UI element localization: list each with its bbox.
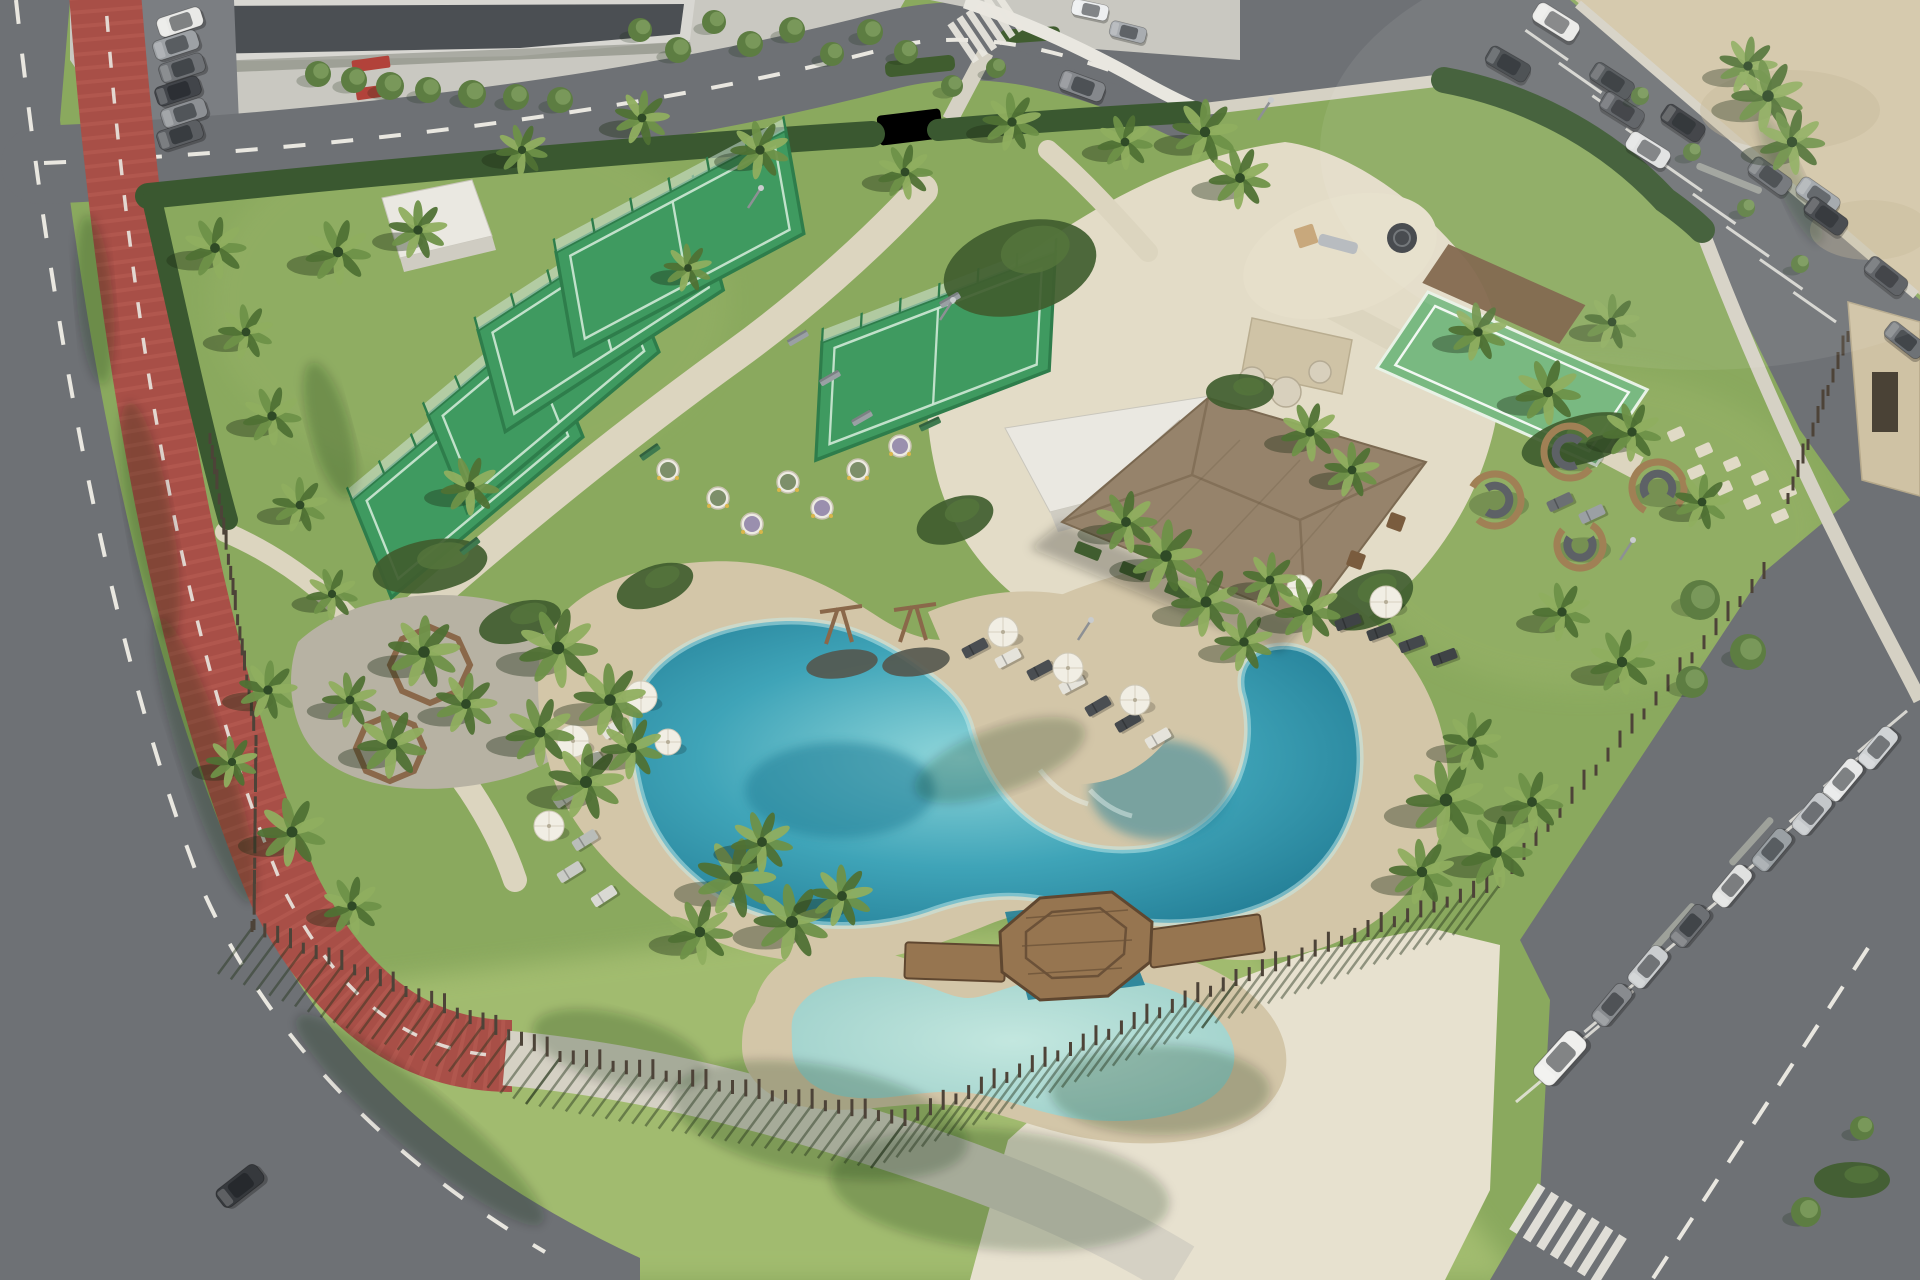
fence-post — [942, 1090, 945, 1110]
fence-post — [837, 1100, 840, 1114]
fence-post — [1171, 999, 1174, 1013]
palm-crown — [461, 699, 471, 709]
fence-post — [1763, 562, 1766, 579]
fence-post — [1822, 390, 1825, 410]
fence-post — [784, 1090, 787, 1104]
fence-post — [1222, 977, 1225, 991]
palm-crown — [228, 758, 236, 766]
fence-post — [1643, 708, 1646, 719]
fence-post — [218, 493, 221, 504]
palm-crown — [1698, 498, 1707, 507]
fence-post — [1158, 1007, 1161, 1018]
palm-crown — [346, 696, 355, 705]
fence-post — [967, 1085, 970, 1099]
potted-tree — [777, 471, 799, 493]
fence-post — [1094, 1025, 1097, 1045]
fence-post — [1792, 477, 1795, 491]
fence-post — [443, 993, 446, 1013]
fence-post — [771, 1090, 774, 1101]
fence-post — [1145, 1004, 1148, 1024]
fence-post — [1327, 932, 1330, 952]
fence-post — [1812, 423, 1815, 437]
fence-post — [1314, 940, 1317, 957]
fence-post — [1018, 1064, 1021, 1078]
fence-post — [1832, 369, 1835, 383]
fence-post — [904, 1115, 907, 1126]
fence-post — [1691, 652, 1694, 663]
fence-post — [254, 796, 257, 807]
fence-post — [1184, 991, 1187, 1008]
potted-tree — [847, 459, 869, 481]
palm-crown — [328, 590, 336, 598]
fence-post — [1406, 908, 1409, 922]
fence-post — [797, 1089, 800, 1106]
fence-post — [430, 991, 433, 1008]
potted-tree — [811, 497, 833, 519]
pot-plant — [780, 474, 796, 490]
fence-post — [209, 433, 212, 444]
fence-post — [598, 1049, 601, 1069]
palm-crown — [1440, 794, 1453, 807]
fence-post — [289, 928, 292, 948]
fence-post — [507, 1029, 510, 1040]
fence-post — [704, 1069, 707, 1089]
fence-post — [417, 988, 420, 1002]
palm-crown — [552, 642, 565, 655]
fence-post — [482, 1013, 485, 1030]
palm-crown — [387, 739, 398, 750]
fence-post — [1069, 1042, 1072, 1056]
aerial-scene-canvas — [0, 0, 1920, 1280]
fence-post — [1607, 748, 1610, 762]
fence-post — [811, 1089, 814, 1109]
fence-post — [1727, 601, 1730, 621]
palm-crown — [296, 501, 305, 510]
fence-post — [1082, 1034, 1085, 1051]
fence-post — [1802, 444, 1805, 464]
fence-post — [1807, 439, 1810, 450]
fence-post — [929, 1098, 932, 1115]
palm-crown — [638, 114, 647, 123]
fence-post — [520, 1032, 523, 1046]
fence-post — [1739, 596, 1742, 607]
fence-post — [1655, 691, 1658, 705]
pot-plant — [660, 462, 676, 478]
palm-crown — [627, 743, 637, 753]
palm-crown — [1305, 427, 1314, 436]
palm-crown — [604, 694, 616, 706]
palm-crown — [757, 837, 767, 847]
fence-post — [651, 1059, 654, 1079]
palm-crown — [1490, 846, 1502, 858]
fence-post — [353, 964, 356, 975]
palm-crown — [580, 776, 592, 788]
fence-post — [405, 986, 408, 997]
fence-post — [1472, 881, 1475, 898]
fence-post — [234, 590, 237, 610]
fence-post — [276, 926, 279, 943]
fence-post — [758, 1079, 761, 1099]
fence-post — [546, 1037, 549, 1057]
palm-crown — [1121, 517, 1131, 527]
fence-post — [328, 948, 331, 965]
fence-post — [1787, 493, 1790, 504]
palm-crown — [730, 872, 743, 885]
fence-post — [392, 972, 395, 992]
fence-post — [236, 614, 239, 625]
fence-post — [220, 506, 223, 520]
palm-crown — [1557, 607, 1566, 616]
fence-post — [1248, 967, 1251, 981]
fence-post — [1619, 731, 1622, 748]
palm-crown — [347, 901, 356, 910]
fence-post — [211, 445, 214, 459]
pot-plant — [892, 438, 908, 454]
fence-post — [678, 1070, 681, 1084]
pot-plant — [710, 490, 726, 506]
palm-crown — [210, 243, 220, 253]
palm-crown — [418, 646, 430, 658]
entrance-door — [1872, 372, 1898, 432]
fence-post — [254, 772, 257, 792]
palm-crown — [1467, 737, 1476, 746]
fence-post — [691, 1070, 694, 1087]
fence-post — [890, 1110, 893, 1124]
palm-crown — [465, 481, 474, 490]
boulder — [1271, 377, 1301, 407]
fence-post — [1301, 948, 1304, 962]
fence-post — [227, 554, 230, 565]
fence-post — [1571, 787, 1574, 804]
palm-crown — [901, 168, 910, 177]
fence-post — [1005, 1072, 1008, 1083]
palm-crown — [263, 685, 272, 694]
potted-tree — [657, 459, 679, 481]
fence-post — [229, 566, 232, 580]
fence-post — [850, 1099, 853, 1116]
palm-crown — [1348, 466, 1357, 475]
fence-post — [877, 1110, 880, 1121]
palm-crown — [695, 927, 705, 937]
fence-post — [1419, 900, 1422, 917]
pot-plant — [744, 516, 760, 532]
fence-post — [255, 735, 258, 746]
fence-post — [1817, 406, 1820, 423]
fence-post — [253, 858, 256, 869]
potted-tree — [707, 487, 729, 509]
fence-post — [494, 1015, 497, 1035]
fence-post — [533, 1034, 536, 1051]
fence-post — [993, 1068, 996, 1088]
palm-crown — [287, 827, 298, 838]
palm-crown — [1417, 867, 1427, 877]
fence-post — [744, 1079, 747, 1096]
fence-post — [254, 809, 257, 823]
palm-crown — [1527, 797, 1537, 807]
fence-post — [1751, 579, 1754, 593]
palm-crown — [1303, 605, 1313, 615]
fence-post — [1133, 1012, 1136, 1029]
fence-post — [253, 870, 256, 884]
palm-crown — [267, 411, 276, 420]
fence-post — [731, 1080, 734, 1094]
fence-post — [1031, 1055, 1034, 1072]
pot-plant — [850, 462, 866, 478]
fence-post — [469, 1010, 472, 1024]
fence-post — [1703, 635, 1706, 649]
palm-crown — [1007, 117, 1016, 126]
fence-post — [1261, 959, 1264, 976]
fence-post — [1209, 986, 1212, 997]
shrub-mass — [1206, 374, 1274, 410]
fence-post — [1393, 916, 1396, 927]
palm-crown — [1617, 657, 1627, 667]
potted-tree — [741, 513, 763, 535]
palm-crown — [786, 916, 798, 928]
fence-post — [1583, 770, 1586, 790]
fence-post — [864, 1099, 867, 1119]
palm-crown — [1266, 576, 1275, 585]
fence-post — [559, 1051, 562, 1062]
fence-post — [1056, 1050, 1059, 1061]
fence-post — [1287, 955, 1290, 966]
fence-post — [225, 530, 228, 550]
fence-post — [1459, 889, 1462, 903]
fence-post — [302, 943, 305, 954]
palm-crown — [518, 146, 526, 154]
fence-post — [1235, 975, 1238, 986]
palm-crown — [1160, 550, 1172, 562]
fence-post — [1595, 765, 1598, 776]
fence-post — [1353, 928, 1356, 942]
resort-aerial-render — [0, 0, 1920, 1280]
fence-post — [1446, 897, 1449, 908]
fence-post — [253, 919, 256, 930]
palm-crown — [1543, 387, 1553, 397]
fence-post — [238, 626, 241, 640]
fence-post — [665, 1071, 668, 1082]
fence-post — [379, 969, 382, 986]
deck-bridge-west — [904, 942, 1005, 981]
palm-crown — [684, 264, 692, 272]
palm-crown — [242, 328, 251, 337]
palm-crown — [837, 891, 847, 901]
fence-post — [1044, 1047, 1047, 1067]
fence-post — [638, 1060, 641, 1077]
fence-post — [572, 1050, 575, 1064]
fence-post — [954, 1093, 957, 1104]
fence-post — [253, 895, 256, 915]
fence-post — [1120, 1020, 1123, 1034]
fence-post — [1340, 936, 1343, 947]
boulder — [1309, 361, 1331, 383]
palm-crown — [413, 225, 422, 234]
fence-post — [718, 1081, 721, 1092]
fence-post — [1797, 460, 1800, 477]
potted-tree — [889, 435, 911, 457]
fence-post — [1715, 618, 1718, 635]
fence-post — [340, 950, 343, 970]
fence-post — [980, 1077, 983, 1094]
fence-post — [1274, 951, 1277, 971]
palm-crown — [1200, 127, 1210, 137]
fence-post — [1380, 912, 1383, 932]
palm-crown — [535, 727, 546, 738]
shrub-mass — [1814, 1162, 1890, 1198]
fence-post — [585, 1050, 588, 1067]
fence-post — [625, 1060, 628, 1074]
fence-post — [1107, 1029, 1110, 1040]
fence-post — [916, 1107, 919, 1121]
fence-post — [456, 1008, 459, 1019]
fence-post — [1196, 982, 1199, 1002]
palm-crown — [755, 145, 764, 154]
palm-crown — [1201, 597, 1212, 608]
fence-post — [824, 1100, 827, 1111]
fence-post — [366, 967, 369, 981]
fence-post — [1827, 385, 1830, 396]
pot-plant — [814, 500, 830, 516]
palm-crown — [1121, 138, 1130, 147]
fence-post — [243, 651, 246, 671]
fence-post — [612, 1061, 615, 1072]
fence-post — [263, 923, 266, 937]
fence-post — [315, 945, 318, 959]
palm-crown — [1235, 173, 1245, 183]
palm-crown — [1627, 427, 1636, 436]
palm-crown — [1239, 637, 1248, 646]
fence-post — [215, 469, 218, 489]
palm-crown — [333, 247, 343, 257]
fence-post — [1367, 920, 1370, 937]
fence-post — [1631, 714, 1634, 734]
